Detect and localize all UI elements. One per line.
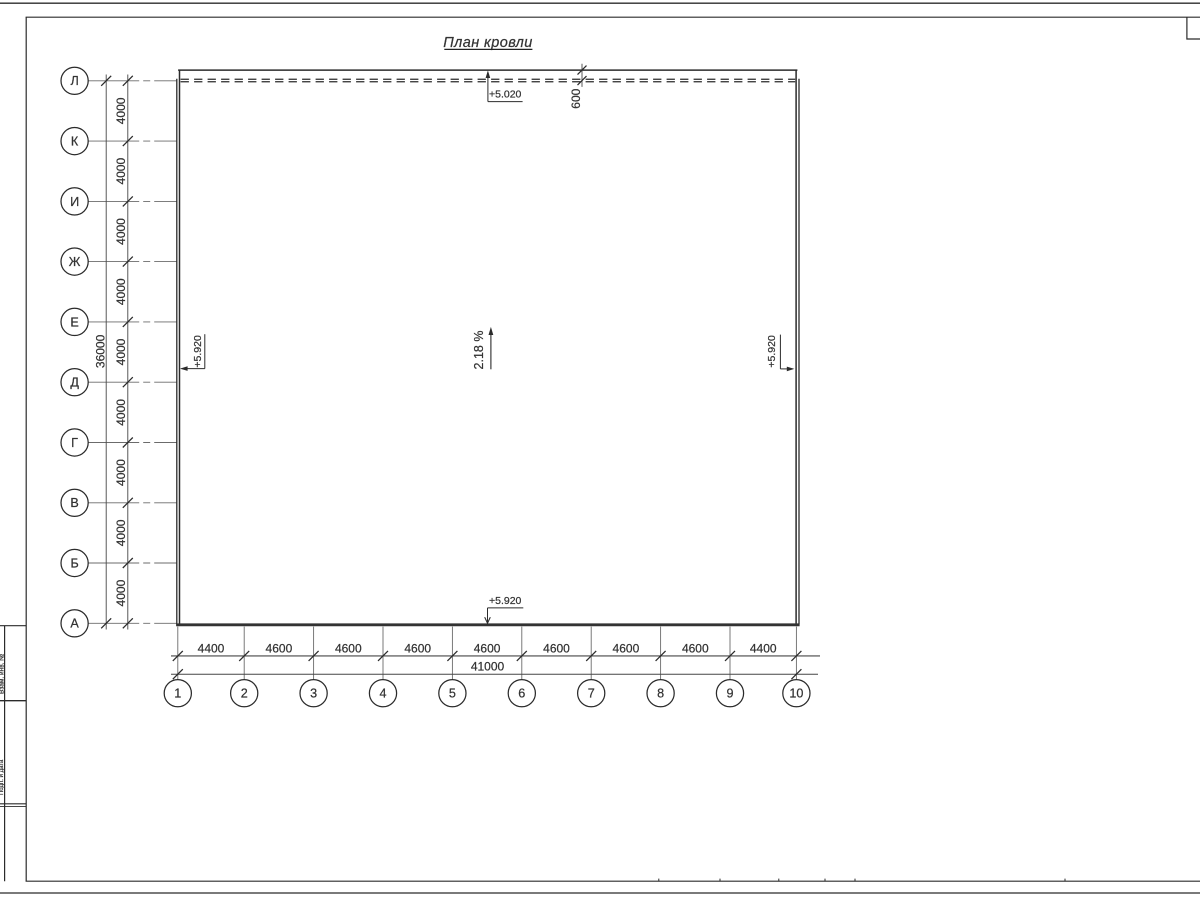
svg-text:41000: 41000 — [471, 660, 505, 674]
svg-text:И: И — [70, 195, 79, 209]
svg-text:1: 1 — [174, 687, 181, 701]
svg-text:4600: 4600 — [682, 641, 709, 655]
svg-text:В: В — [70, 496, 78, 510]
svg-text:2: 2 — [241, 687, 248, 701]
svg-text:4400: 4400 — [750, 641, 777, 655]
svg-text:Е: Е — [70, 315, 78, 329]
svg-text:4000: 4000 — [114, 338, 128, 365]
svg-text:4600: 4600 — [474, 641, 501, 655]
svg-text:4000: 4000 — [114, 459, 128, 486]
svg-text:10: 10 — [789, 687, 803, 701]
svg-text:4400: 4400 — [198, 641, 225, 655]
svg-text:4000: 4000 — [114, 218, 128, 245]
svg-text:Б: Б — [70, 556, 78, 570]
svg-text:Г: Г — [71, 436, 78, 450]
svg-text:36000: 36000 — [93, 334, 107, 368]
svg-text:4600: 4600 — [266, 641, 293, 655]
svg-text:+5.920: +5.920 — [489, 595, 522, 607]
svg-text:4000: 4000 — [114, 97, 128, 124]
svg-text:План кровли: План кровли — [443, 35, 532, 51]
svg-text:6: 6 — [518, 687, 525, 701]
svg-text:2.18 %: 2.18 % — [472, 331, 486, 370]
svg-text:Взам. инв. №: Взам. инв. № — [0, 654, 5, 694]
svg-text:8: 8 — [657, 687, 664, 701]
svg-text:4600: 4600 — [543, 641, 570, 655]
svg-text:Д: Д — [70, 376, 79, 390]
svg-text:3: 3 — [310, 687, 317, 701]
svg-text:4000: 4000 — [114, 399, 128, 426]
svg-text:К: К — [71, 135, 79, 149]
svg-text:4000: 4000 — [114, 158, 128, 185]
svg-text:4600: 4600 — [335, 641, 362, 655]
svg-text:4000: 4000 — [114, 519, 128, 546]
svg-text:Ж: Ж — [69, 255, 81, 269]
svg-text:+5.920: +5.920 — [192, 335, 204, 368]
svg-text:9: 9 — [726, 687, 733, 701]
svg-text:4600: 4600 — [404, 641, 431, 655]
svg-text:4600: 4600 — [613, 641, 640, 655]
svg-text:7: 7 — [588, 687, 595, 701]
svg-text:4: 4 — [379, 687, 386, 701]
svg-text:4000: 4000 — [114, 579, 128, 606]
svg-text:5: 5 — [449, 687, 456, 701]
svg-text:4000: 4000 — [114, 278, 128, 305]
svg-text:+5.920: +5.920 — [766, 335, 778, 368]
svg-text:Л: Л — [70, 74, 78, 88]
svg-text:+5.020: +5.020 — [489, 88, 522, 100]
svg-text:Подп. и дата: Подп. и дата — [0, 759, 5, 795]
svg-text:600: 600 — [569, 88, 583, 108]
svg-text:А: А — [70, 617, 79, 631]
